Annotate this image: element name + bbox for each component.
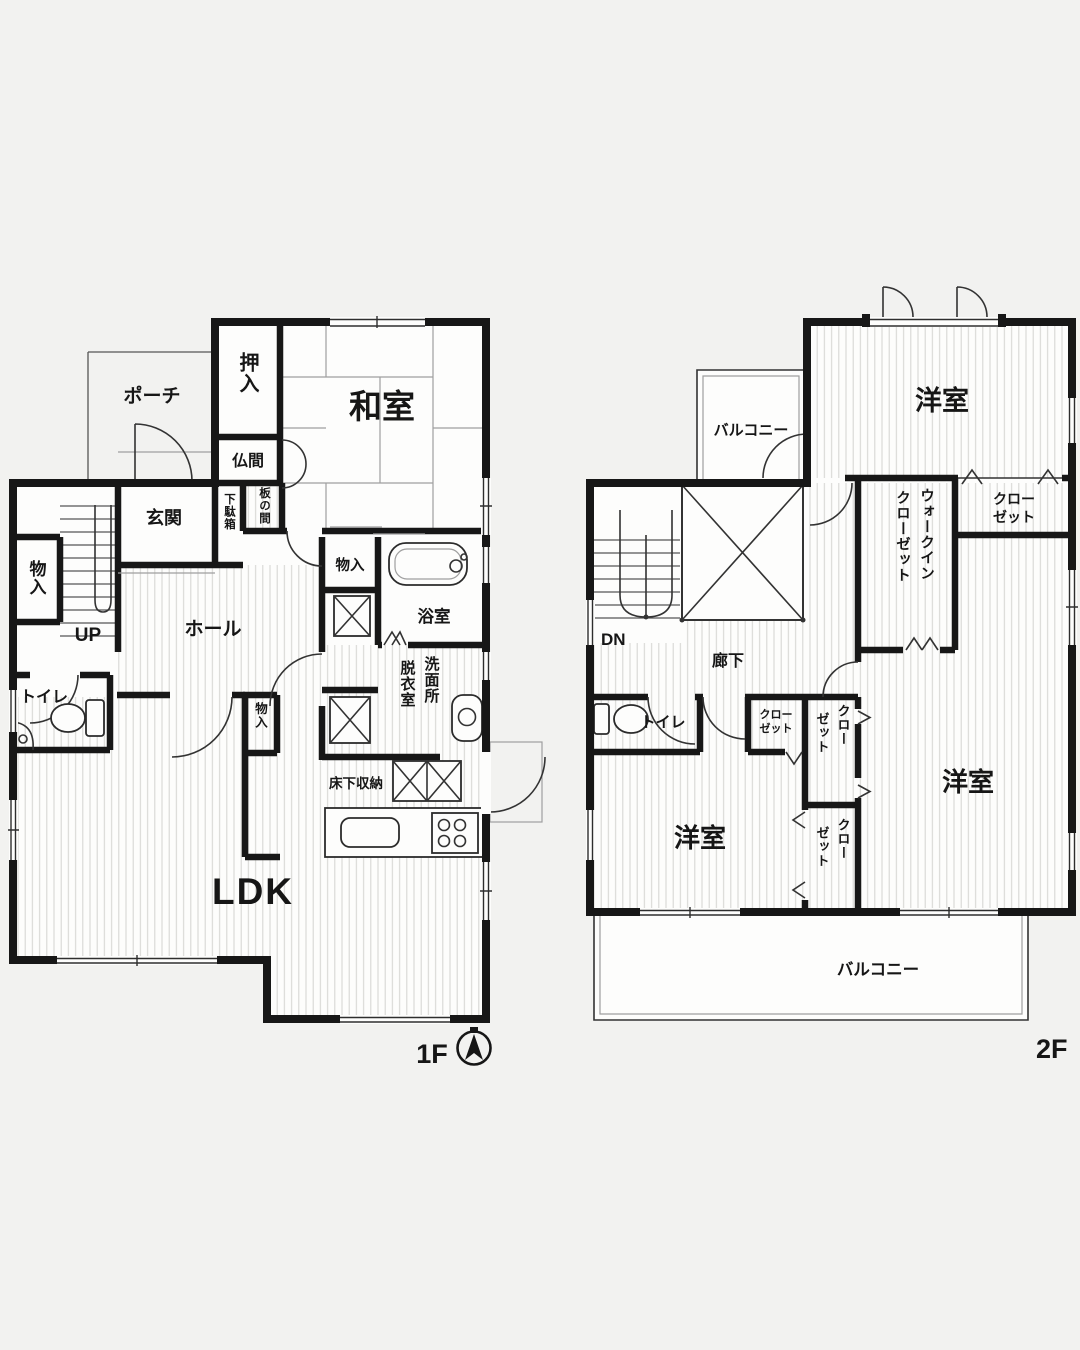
room-label-balcony-upper: バルコニー [714,422,789,439]
room-label-bedroom-left: 洋室 [674,823,726,853]
room-label-underfloor-storage: 床下収納 [329,775,383,791]
floor-plan-drawing: ポーチ 押入 和室 仏間 下駄箱 板の間 玄関 物入 UP トイレ ホール 物入… [0,0,1080,1350]
room-label-bedroom-right: 洋室 [942,767,994,797]
room-label-butsuma: 仏間 [232,452,264,470]
room-label-washroom-col-right: 洗面所 [423,655,440,704]
room-label-closet-hall-line1: クロー [760,708,793,721]
floor2-tag: 2F [1036,1034,1068,1064]
stairs-down-label: DN [601,630,626,649]
room-label-washroom-col-left: 脱衣室 [399,659,416,708]
room-label-ldk: LDK [212,871,294,912]
room-label-toilet-1f: トイレ [20,689,68,706]
room-label-wic-col-left: クローゼット [894,490,910,583]
kitchen-counter-icon [325,808,486,857]
x-storage-box-2 [330,697,370,743]
room-label-getabako: 下駄箱 [223,493,236,531]
room-label-closet-top-line2: ゼット [993,509,1035,525]
room-label-oshiire: 押入 [236,351,259,394]
room-label-toilet-2f: トイレ [640,714,685,731]
room-label-wic-col-right: ウォークイン [918,488,934,581]
balcony-lower-outline [594,912,1028,1020]
bathtub-icon [389,543,467,585]
room-label-balcony-lower: バルコニー [837,961,919,979]
floor1-tag: 1F [416,1039,448,1069]
room-label-genkan: 玄関 [146,507,182,528]
room-label-bathroom: 浴室 [418,606,451,626]
floor-plan-page: ポーチ 押入 和室 仏間 下駄箱 板の間 玄関 物入 UP トイレ ホール 物入… [0,0,1080,1350]
room-label-closet-a-col-right: クロー [836,704,851,746]
room-label-storage-mid: 物入 [336,556,365,574]
room-label-corridor: 廊下 [712,651,744,670]
x-storage-box-1 [334,596,370,636]
room-label-storage-hall: 物入 [253,701,267,729]
room-label-closet-hall-line2: ゼット [760,721,793,735]
stairs-up-label: UP [75,625,102,646]
room-label-closet-top-line1: クロー [993,491,1035,507]
void-x-box [680,483,806,623]
room-label-closet-b-col-left: ゼット [815,825,830,868]
room-label-closet-b-col-right: クロー [836,818,851,860]
room-label-closet-a-col-left: ゼット [815,711,830,754]
underfloor-storage-box [393,761,461,801]
room-label-hall: ホール [184,619,241,640]
floor1-plan: ポーチ 押入 和室 仏間 下駄箱 板の間 玄関 物入 UP トイレ ホール 物入… [8,316,545,1069]
room-label-washitsu: 和室 [349,388,415,425]
room-label-itanoma: 板の間 [258,486,271,524]
room-label-bedroom-top: 洋室 [915,385,969,416]
room-label-porch: ポーチ [123,384,180,407]
washbasin-icon [452,695,482,741]
room-label-storage-left: 物入 [27,559,47,596]
